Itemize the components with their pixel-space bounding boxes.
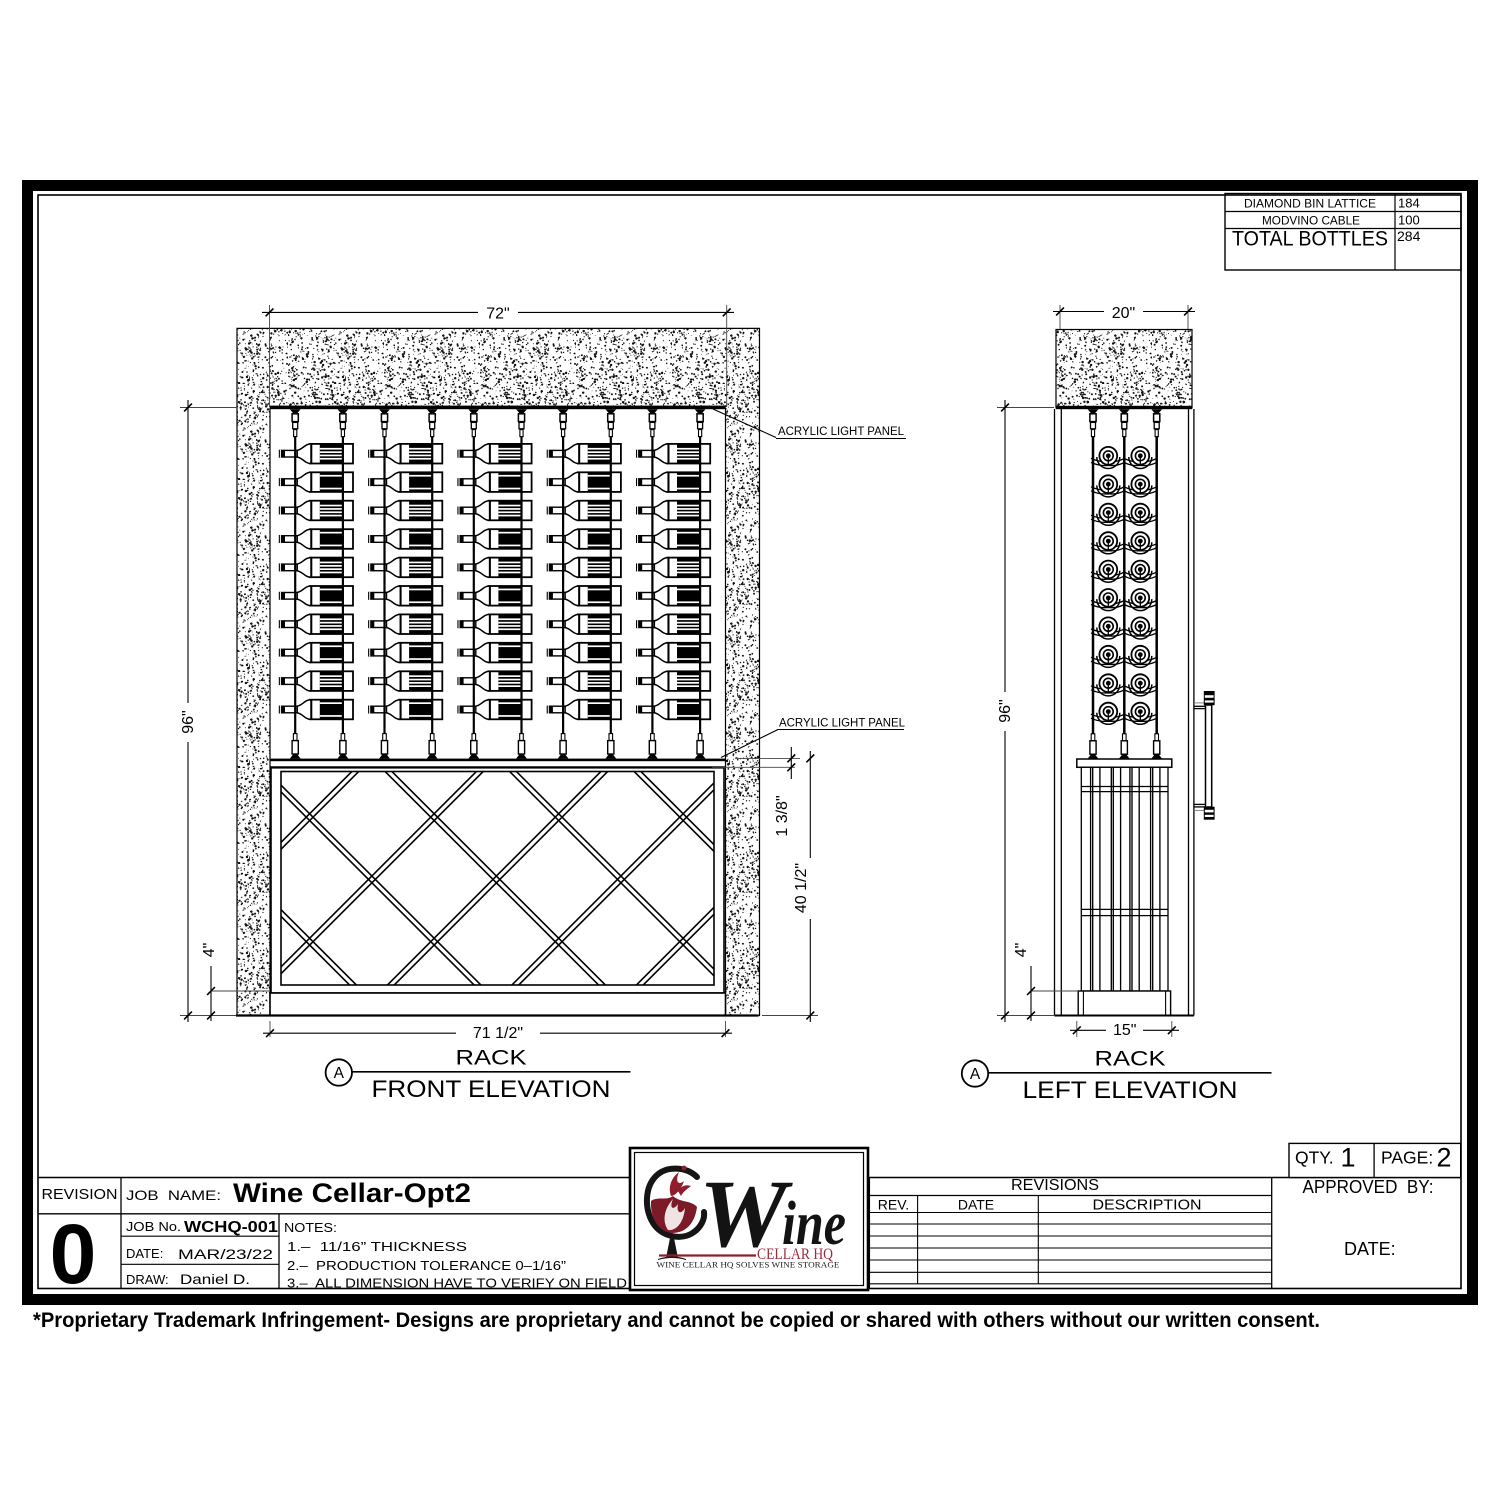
svg-text:71 1/2": 71 1/2" bbox=[473, 1025, 523, 1042]
svg-text:72": 72" bbox=[486, 306, 509, 323]
svg-text:100: 100 bbox=[1398, 213, 1420, 228]
svg-text:PAGE:: PAGE: bbox=[1381, 1148, 1433, 1168]
svg-text:3.– ALL DIMENSION HAVE TO VER: 3.– ALL DIMENSION HAVE TO VERIFY ON FIEL… bbox=[287, 1276, 627, 1291]
svg-text:APPROVED BY:: APPROVED BY: bbox=[1303, 1177, 1434, 1197]
svg-text:REVISION: REVISION bbox=[42, 1187, 118, 1203]
svg-text:QTY.: QTY. bbox=[1295, 1148, 1334, 1168]
svg-text:LEFT ELEVATION: LEFT ELEVATION bbox=[1023, 1077, 1238, 1104]
svg-text:DRAW:: DRAW: bbox=[126, 1272, 169, 1287]
svg-text:DESCRIPTION: DESCRIPTION bbox=[1093, 1197, 1202, 1214]
svg-text:DATE:: DATE: bbox=[126, 1246, 163, 1261]
svg-text:JOB NAME:: JOB NAME: bbox=[126, 1187, 221, 1203]
svg-text:DATE:: DATE: bbox=[1344, 1239, 1396, 1259]
svg-text:15": 15" bbox=[1113, 1022, 1136, 1039]
svg-text:184: 184 bbox=[1398, 196, 1420, 211]
svg-text:JOB No.: JOB No. bbox=[126, 1219, 181, 1234]
svg-text:1.– 11/16” THICKNESS: 1.– 11/16” THICKNESS bbox=[287, 1239, 467, 1254]
svg-text:FRONT ELEVATION: FRONT ELEVATION bbox=[372, 1076, 611, 1103]
svg-text:Wine Cellar-Opt2: Wine Cellar-Opt2 bbox=[233, 1178, 471, 1208]
svg-text:REV.: REV. bbox=[878, 1197, 909, 1213]
svg-text:1 3/8": 1 3/8" bbox=[774, 795, 791, 836]
svg-text:A: A bbox=[334, 1065, 345, 1082]
svg-text:DIAMOND BIN LATTICE: DIAMOND BIN LATTICE bbox=[1244, 199, 1376, 211]
svg-text:NOTES:: NOTES: bbox=[284, 1220, 337, 1235]
svg-text:A: A bbox=[970, 1066, 981, 1083]
svg-text:96": 96" bbox=[180, 710, 197, 733]
svg-text:RACK: RACK bbox=[1095, 1047, 1167, 1071]
svg-text:284: 284 bbox=[1397, 228, 1421, 244]
svg-text:WINE CELLAR HQ SOLVES WINE STO: WINE CELLAR HQ SOLVES WINE STORAGE bbox=[657, 1260, 840, 1270]
svg-text:2: 2 bbox=[1436, 1143, 1451, 1173]
svg-text:RACK: RACK bbox=[456, 1046, 528, 1070]
svg-text:ACRYLIC LIGHT PANEL: ACRYLIC LIGHT PANEL bbox=[778, 424, 904, 438]
svg-text:20": 20" bbox=[1112, 305, 1135, 322]
svg-text:Daniel D.: Daniel D. bbox=[180, 1271, 250, 1287]
svg-text:4": 4" bbox=[201, 943, 218, 958]
svg-text:0: 0 bbox=[50, 1207, 97, 1301]
svg-text:40 1/2": 40 1/2" bbox=[793, 863, 810, 913]
svg-text:1: 1 bbox=[1340, 1143, 1355, 1173]
svg-text:4": 4" bbox=[1013, 943, 1030, 958]
svg-text:DATE: DATE bbox=[958, 1197, 994, 1213]
svg-text:MAR/23/22: MAR/23/22 bbox=[178, 1246, 273, 1262]
svg-text:REVISIONS: REVISIONS bbox=[1011, 1177, 1099, 1194]
svg-text:MODVINO CABLE: MODVINO CABLE bbox=[1262, 216, 1360, 228]
svg-text:*Proprietary Trademark Infring: *Proprietary Trademark Infringement- Des… bbox=[33, 1308, 1320, 1332]
svg-text:TOTAL BOTTLES: TOTAL BOTTLES bbox=[1232, 228, 1388, 251]
svg-text:ACRYLIC LIGHT PANEL: ACRYLIC LIGHT PANEL bbox=[779, 716, 905, 730]
svg-text:2.– PRODUCTION TOLERANCE 0–1/: 2.– PRODUCTION TOLERANCE 0–1/16” bbox=[287, 1258, 566, 1273]
svg-text:WCHQ-001: WCHQ-001 bbox=[184, 1219, 278, 1236]
svg-text:96": 96" bbox=[997, 699, 1014, 722]
